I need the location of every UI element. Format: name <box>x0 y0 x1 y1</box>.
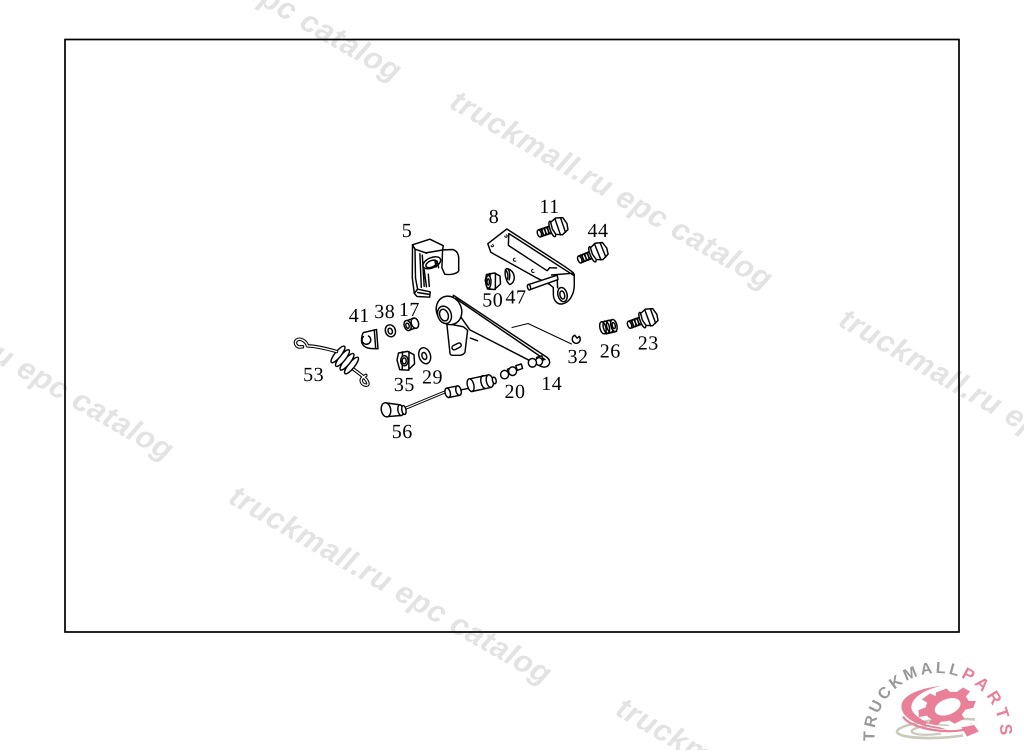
svg-text:41: 41 <box>349 305 370 327</box>
svg-text:17: 17 <box>399 299 420 321</box>
svg-text:50: 50 <box>482 290 503 312</box>
svg-text:32: 32 <box>568 346 589 368</box>
svg-text:14: 14 <box>541 373 562 395</box>
svg-text:44: 44 <box>588 220 609 242</box>
svg-text:29: 29 <box>422 367 443 389</box>
svg-text:5: 5 <box>402 220 413 242</box>
svg-text:23: 23 <box>638 333 659 355</box>
svg-text:47: 47 <box>506 287 527 309</box>
svg-text:26: 26 <box>600 341 621 363</box>
svg-text:11: 11 <box>539 196 559 218</box>
svg-text:8: 8 <box>489 206 500 228</box>
svg-text:56: 56 <box>392 421 413 443</box>
svg-text:53: 53 <box>303 364 324 386</box>
svg-text:38: 38 <box>374 301 395 323</box>
svg-text:35: 35 <box>394 374 415 396</box>
svg-text:20: 20 <box>505 381 526 403</box>
